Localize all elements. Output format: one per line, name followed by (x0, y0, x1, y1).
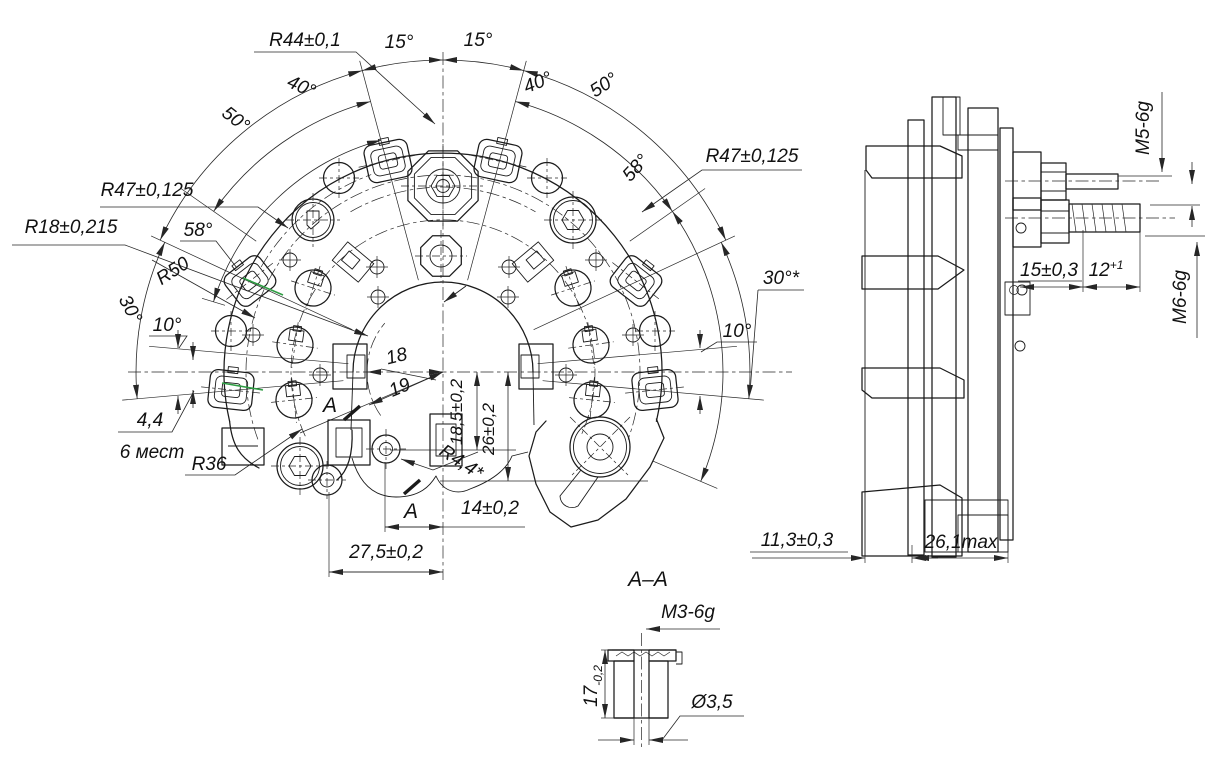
dim-label-10-right: 10° (723, 321, 752, 342)
dim-label-r47-right: R47±0,125 (706, 146, 799, 167)
dim-label-11-3: 11,3±0,3 (761, 530, 834, 551)
dim-label-58-right: 58° (618, 150, 653, 186)
stamped-arrow-mark (444, 286, 466, 302)
rivet (622, 324, 644, 346)
section-dimensions (598, 629, 744, 745)
window (333, 344, 367, 389)
thread-label-m6: M6-6g (1170, 270, 1191, 324)
front-view-labels: R44±0,1 15° 15° 40° 40° 50° 50° 58° 58° … (25, 30, 800, 563)
side-view-dimensions (750, 92, 1205, 563)
dim-label-30-right: 30°* (763, 268, 800, 289)
dim-label-r47-left: R47±0,125 (101, 180, 194, 201)
dim-label-15-right: 15° (464, 30, 493, 51)
rivet (555, 364, 577, 386)
phase-boss (415, 230, 467, 282)
dim-label-17: 17-0,2 (581, 665, 605, 707)
section-labels: A–A M3-6g 17-0,2 Ø3,5 (581, 568, 733, 713)
thread-label-m5: M5-6g (1133, 101, 1154, 155)
dim-label-58-left: 58° (184, 220, 213, 241)
dim-label-26: 26±0,2 (479, 403, 498, 456)
diode (269, 375, 320, 426)
side-view-labels: M5-6g M6-6g 15±0,3 12+1 11,3±0,3 26,1max (761, 101, 1191, 553)
heatsink-fin (862, 368, 964, 398)
dim-label-27-5: 27,5±0,2 (348, 542, 423, 563)
hole (527, 158, 567, 198)
diode (565, 319, 617, 371)
note-places: 6 мест (120, 442, 185, 463)
section-letter-a: A (402, 500, 418, 523)
diode (284, 259, 342, 317)
section-title: A–A (626, 568, 668, 591)
dim-label-r50: R50 (153, 253, 194, 290)
dim-label-4-4: 4,4 (137, 410, 163, 431)
dim-label-40-left: 40° (284, 72, 319, 103)
window (519, 344, 553, 389)
rivet (497, 286, 519, 308)
locating-hole (308, 461, 346, 499)
output-stud-boss (401, 144, 485, 228)
side-view-body (862, 97, 1175, 557)
dim-label-r18: R18±0,215 (25, 217, 118, 238)
bushing-boss (366, 429, 406, 469)
window (328, 420, 370, 465)
rivet (279, 249, 301, 271)
rivet (585, 249, 607, 271)
stamped-tab (332, 242, 373, 282)
section-view: A–A M3-6g 17-0,2 Ø3,5 (581, 568, 744, 750)
thread-label-m3: M3-6g (661, 602, 715, 623)
dim-label-18: 18 (384, 344, 410, 370)
section-bushing (608, 633, 682, 750)
dim-label-15-left: 15° (385, 32, 414, 53)
dim-label-30-left: 30° (114, 292, 146, 328)
terminal (601, 244, 674, 314)
rivet (367, 286, 389, 308)
dim-label-50-left: 50° (218, 103, 254, 137)
rivet (242, 324, 264, 346)
dim-label-26-1: 26,1max (924, 532, 999, 553)
dim-label-r36: R36 (192, 454, 227, 475)
terminal (212, 244, 285, 314)
side-view: M5-6g M6-6g 15±0,3 12+1 11,3±0,3 26,1max (750, 92, 1205, 563)
rivet (309, 364, 331, 386)
diode (269, 319, 321, 371)
dim-label-15-0-3: 15±0,3 (1020, 260, 1078, 281)
m6-stud (1005, 198, 1175, 247)
dim-label-50-right: 50° (586, 69, 622, 102)
dim-label-10-left: 10° (153, 315, 182, 336)
stamped-tab (512, 242, 553, 282)
diode (544, 259, 602, 317)
hole (211, 311, 251, 351)
dim-label-19: 19 (386, 374, 414, 402)
hole (635, 311, 675, 351)
rivet (498, 256, 520, 278)
dim-label-18-5: 18,5±0,2 (447, 378, 466, 445)
terminal (623, 364, 687, 412)
dim-label-14: 14±0,2 (461, 498, 519, 519)
dim-label-r44: R44±0,1 (269, 30, 341, 51)
dim-label-40-right: 40° (521, 68, 556, 98)
m5-stud (1005, 152, 1160, 210)
hole (319, 158, 359, 198)
heatsink-fin (866, 146, 962, 178)
dim-label-diameter-3-5: Ø3,5 (690, 692, 733, 713)
diode (286, 193, 340, 247)
keyhole-boss (560, 417, 630, 508)
rivet (366, 256, 388, 278)
front-view: R44±0,1 15° 15° 40° 40° 50° 50° 58° 58° … (12, 30, 804, 580)
section-letter-a: A (321, 394, 337, 417)
dim-label-12: 12+1 (1089, 258, 1124, 281)
heatsink-fin (862, 256, 964, 289)
rectifier-bridge-drawing: R44±0,1 15° 15° 40° 40° 50° 50° 58° 58° … (0, 0, 1223, 764)
diode (544, 191, 602, 249)
engineering-drawing-page: R44±0,1 15° 15° 40° 40° 50° 50° 58° 58° … (0, 0, 1223, 764)
